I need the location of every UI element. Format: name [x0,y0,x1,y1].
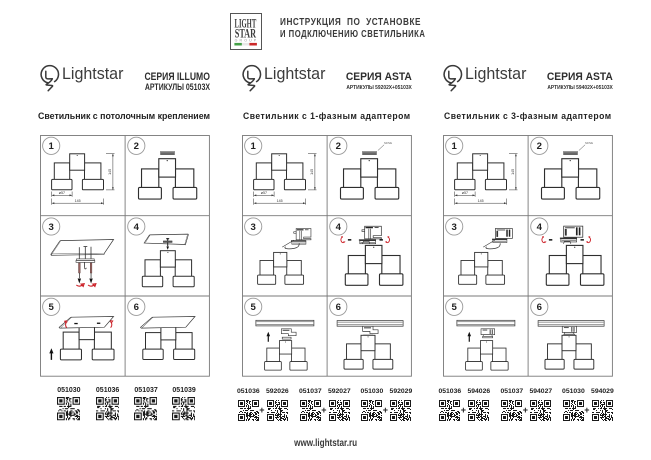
svg-text:3: 3 [49,222,54,233]
svg-text:6: 6 [134,302,139,313]
svg-text:6: 6 [336,302,341,313]
svg-text:ø57: ø57 [59,191,65,195]
svg-text:4: 4 [537,222,543,233]
svg-text:1: 1 [452,141,458,152]
svg-text:ø57: ø57 [462,191,468,195]
svg-text:3: 3 [250,222,255,233]
svg-text:145: 145 [108,169,112,175]
svg-text:4: 4 [134,222,140,233]
svg-text:ø57: ø57 [261,191,267,195]
svg-text:145: 145 [75,199,81,203]
svg-text:6: 6 [537,302,542,313]
svg-text:2: 2 [134,141,139,152]
svg-text:145: 145 [512,169,516,175]
svg-text:1: 1 [49,141,55,152]
svg-text:145: 145 [310,169,314,175]
svg-text:145: 145 [478,199,484,203]
svg-text:145: 145 [276,199,282,203]
svg-text:5: 5 [49,302,55,313]
svg-text:MOVE: MOVE [586,141,594,145]
svg-text:2: 2 [537,141,542,152]
svg-text:2: 2 [336,141,341,152]
svg-text:5: 5 [452,302,458,313]
svg-text:MOVE: MOVE [384,141,392,145]
svg-text:1: 1 [250,141,256,152]
svg-text:3: 3 [452,222,457,233]
svg-text:4: 4 [336,222,342,233]
svg-text:5: 5 [250,302,256,313]
